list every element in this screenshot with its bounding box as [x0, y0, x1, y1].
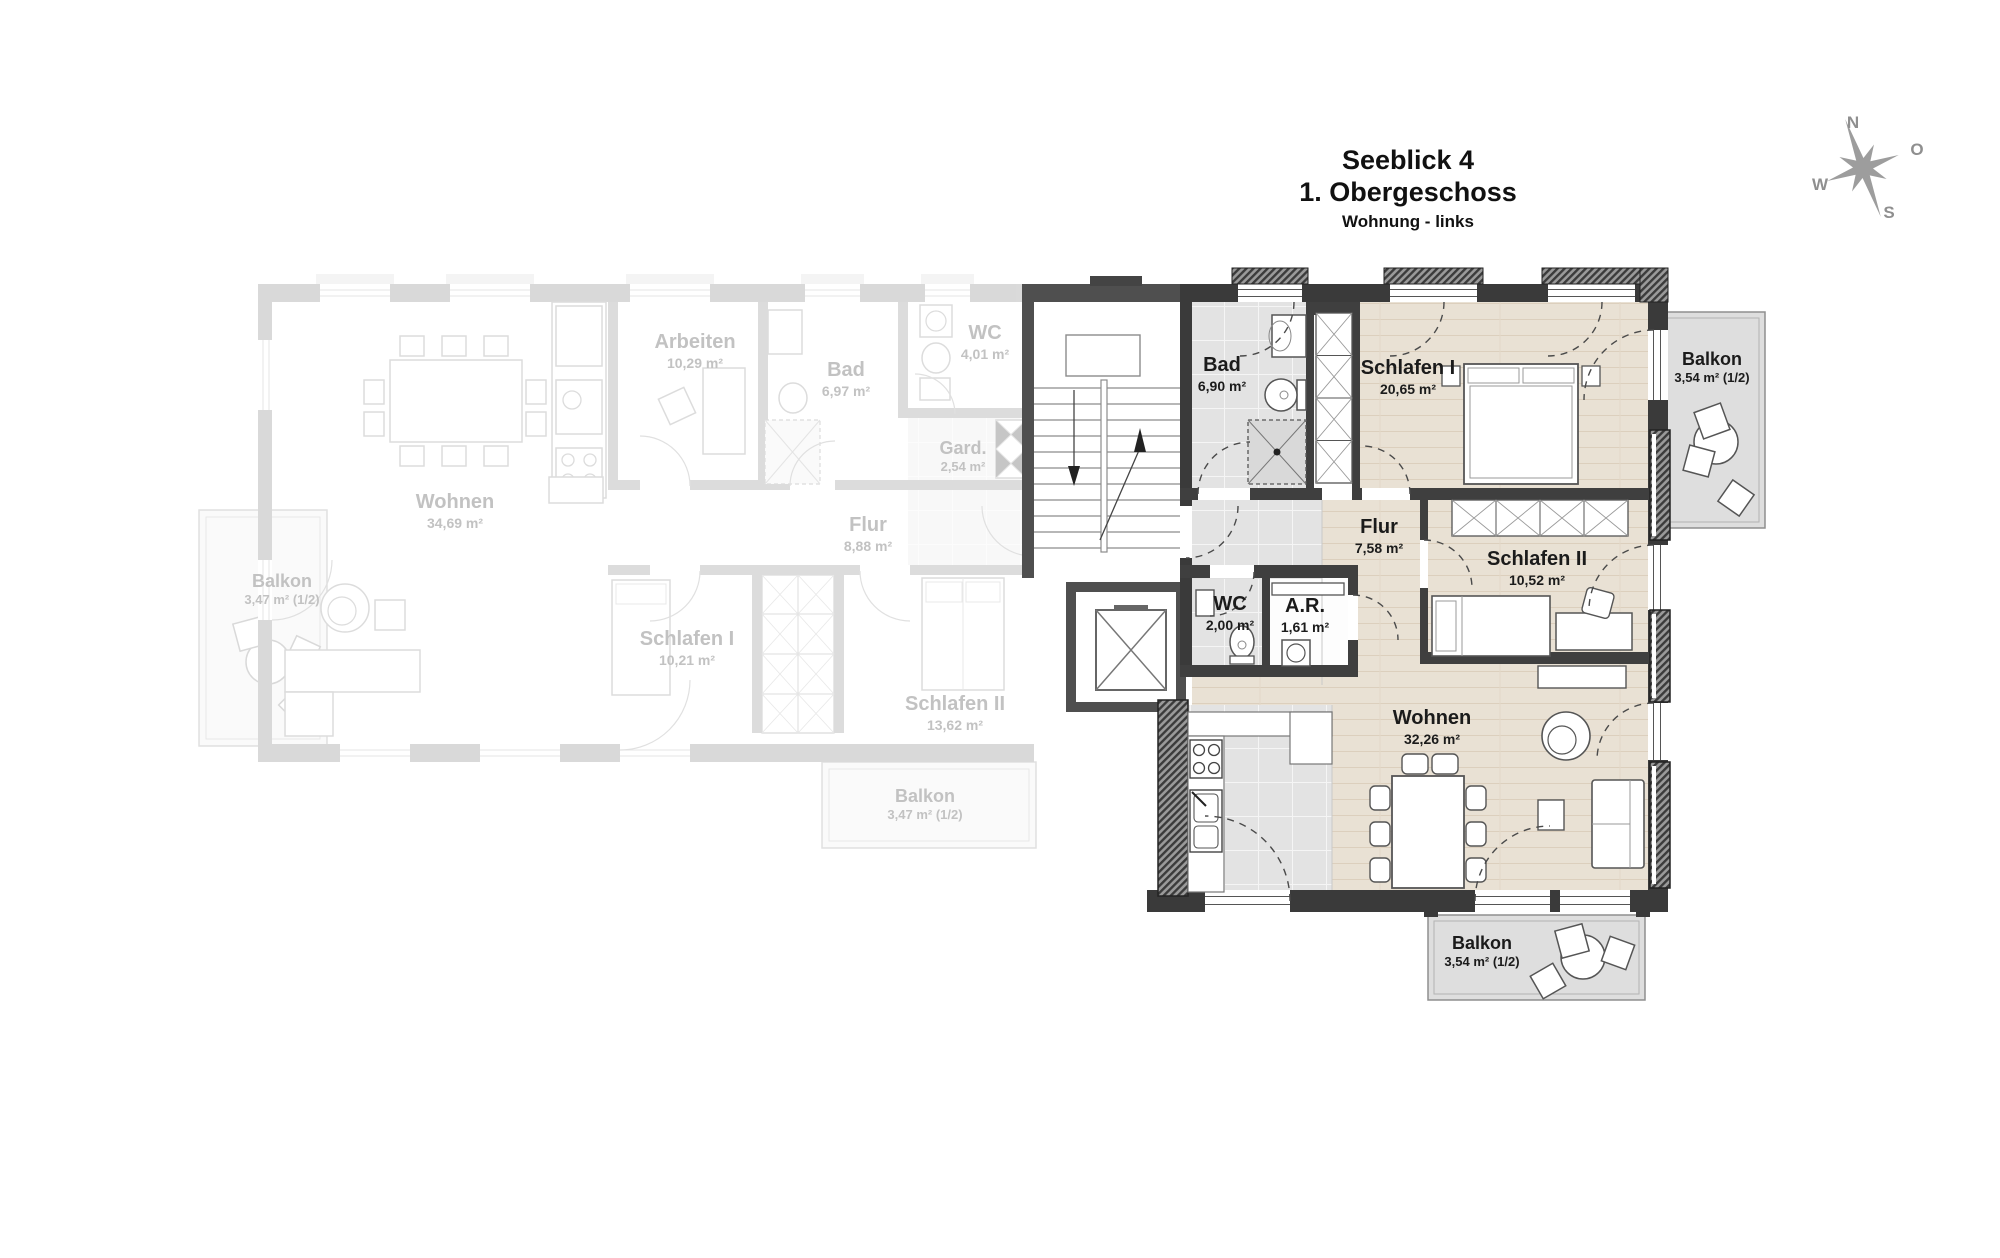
elevator: [1071, 587, 1181, 707]
room-label-balkon-top: Balkon 3,54 m² (1/2): [1674, 349, 1749, 386]
neighbor-label-wohnen: Wohnen 34,69 m²: [416, 491, 495, 531]
room-label-balkon-bottom: Balkon 3,54 m² (1/2): [1444, 933, 1519, 970]
compass-east-label: O: [1910, 140, 1923, 160]
sideboard: [1538, 666, 1626, 688]
neighbor-label-flur: Flur 8,88 m²: [844, 514, 892, 554]
compass-south-label: S: [1883, 203, 1894, 223]
floorplan-drawing: [0, 0, 2000, 1258]
compass-north-label: N: [1847, 113, 1859, 133]
dining-table: [1392, 776, 1464, 888]
neighbor-label-balkon-left: Balkon 3,47 m² (1/2): [244, 571, 319, 608]
neighbor-label-wc: WC 4,01 m²: [961, 322, 1009, 362]
neighbor-label-arbeiten: Arbeiten 10,29 m²: [654, 331, 735, 371]
neighbor-apartment-graphics: [199, 274, 1036, 848]
neighbor-label-balkon-bottom: Balkon 3,47 m² (1/2): [887, 786, 962, 823]
compass-west-label: W: [1812, 175, 1828, 195]
unit-subtitle: Wohnung - links: [1299, 209, 1517, 235]
neighbor-label-schlafen1: Schlafen I 10,21 m²: [640, 628, 734, 668]
stairwell: [1022, 276, 1192, 578]
toilet: [1265, 379, 1297, 411]
room-label-schlafen1: Schlafen I 20,65 m²: [1361, 357, 1455, 397]
room-label-flur: Flur 7,58 m²: [1355, 516, 1403, 556]
room-label-schlafen2: Schlafen II 10,52 m²: [1487, 548, 1587, 588]
compass-rose: [1810, 106, 1917, 230]
room-label-ar: A.R. 1,61 m²: [1281, 595, 1329, 635]
neighbor-label-bad: Bad 6,97 m²: [822, 359, 870, 399]
room-label-bad: Bad 6,90 m²: [1198, 354, 1246, 394]
room-label-wc: WC 2,00 m²: [1206, 593, 1254, 633]
coffee-table: [1538, 800, 1564, 830]
room-label-wohnen: Wohnen 32,26 m²: [1393, 707, 1472, 747]
balcony-top-right: [1660, 312, 1765, 528]
neighbor-label-gard: Gard. 2,54 m²: [939, 438, 986, 475]
title-block: Seeblick 4 1. Obergeschoss Wohnung - lin…: [1299, 144, 1517, 234]
floor-title: 1. Obergeschoss: [1299, 176, 1517, 208]
floorplan-canvas: Seeblick 4 1. Obergeschoss Wohnung - lin…: [0, 0, 2000, 1258]
desk: [1556, 613, 1632, 650]
neighbor-label-schlafen2: Schlafen II 13,62 m²: [905, 693, 1005, 733]
project-title: Seeblick 4: [1299, 144, 1517, 176]
